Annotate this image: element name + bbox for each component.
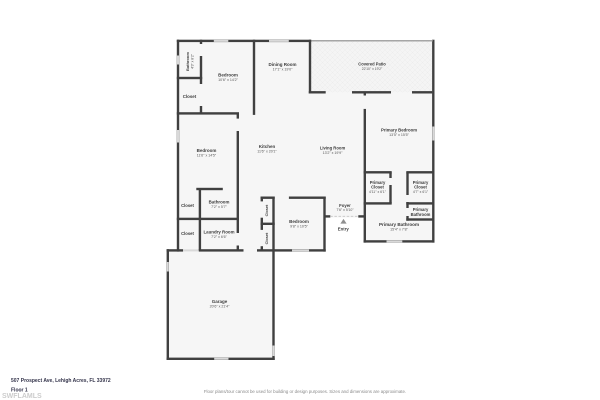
svg-text:17'1" x 19'0": 17'1" x 19'0" [273,68,293,72]
svg-text:Closet: Closet [414,184,427,189]
svg-text:15'4" x 7'8": 15'4" x 7'8" [390,228,408,232]
svg-text:Kitchen: Kitchen [259,144,276,149]
svg-text:10'6" x 14'2": 10'6" x 14'2" [218,78,238,82]
svg-text:Entry: Entry [338,226,350,231]
svg-text:Bathroom: Bathroom [209,200,230,205]
svg-text:Closet: Closet [183,94,197,99]
svg-text:Bedroom: Bedroom [197,148,217,153]
svg-text:22'10" x 19'2": 22'10" x 19'2" [362,67,383,71]
svg-text:Primary Bathroom: Primary Bathroom [379,222,419,227]
svg-text:Closet: Closet [371,184,384,189]
svg-text:Dining Room: Dining Room [269,62,297,67]
svg-text:Laundry Room: Laundry Room [204,230,235,235]
svg-text:Bedroom: Bedroom [289,219,309,224]
svg-text:7'6" x 5'10": 7'6" x 5'10" [336,208,354,212]
svg-text:Bathroom: Bathroom [411,212,431,217]
svg-text:4'3" x 8'2": 4'3" x 8'2" [190,53,194,69]
svg-text:20'6" x 21'4": 20'6" x 21'4" [210,305,230,309]
svg-text:11'6" x 14'5": 11'6" x 14'5" [197,154,217,158]
svg-text:Garage: Garage [212,299,228,304]
svg-text:Closet: Closet [181,231,194,236]
svg-text:Closet: Closet [265,204,269,216]
svg-text:Bedroom: Bedroom [218,73,238,78]
svg-text:9'8" x 10'5": 9'8" x 10'5" [290,225,308,229]
svg-text:Closet: Closet [181,203,194,208]
svg-text:Covered Patio: Covered Patio [358,62,386,67]
svg-text:13'2" x 19'9": 13'2" x 19'9" [323,151,343,155]
svg-text:507 Prospect Ave, Lehigh Acres: 507 Prospect Ave, Lehigh Acres, FL 33972 [11,378,111,384]
svg-text:Closet: Closet [265,232,269,244]
svg-text:SWFLAMLS: SWFLAMLS [2,393,42,400]
svg-text:7'2" x 6'6": 7'2" x 6'6" [211,235,227,239]
svg-text:11'6" x 20'1": 11'6" x 20'1" [257,150,277,154]
svg-text:4'11" x 6'1": 4'11" x 6'1" [369,190,387,194]
svg-text:Bathroom: Bathroom [185,52,190,71]
svg-text:Floor plans/tour cannot be use: Floor plans/tour cannot be used for buil… [204,389,406,394]
svg-text:Primary Bedroom: Primary Bedroom [381,128,417,133]
svg-text:7'2" x 5'7": 7'2" x 5'7" [211,205,227,209]
svg-text:Living Room: Living Room [320,146,346,151]
svg-text:13'5" x 15'5": 13'5" x 15'5" [389,133,409,137]
svg-text:4'7" x 6'1": 4'7" x 6'1" [413,190,429,194]
